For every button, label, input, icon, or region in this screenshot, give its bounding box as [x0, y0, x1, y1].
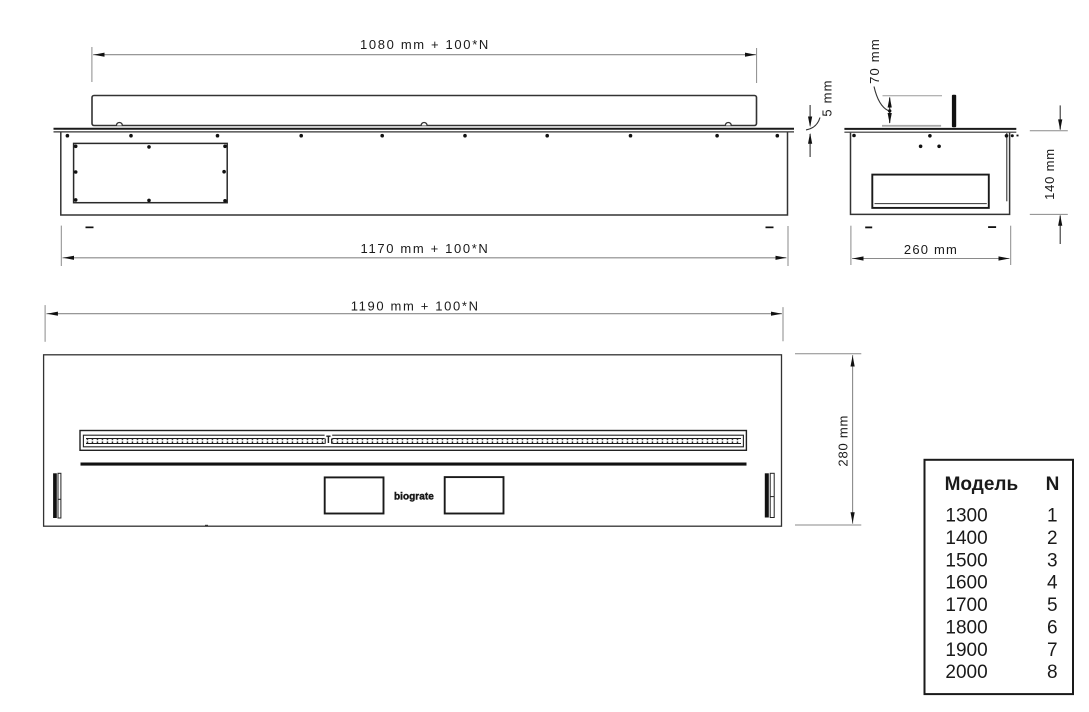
svg-text:6: 6: [1047, 617, 1058, 638]
svg-text:N: N: [1046, 474, 1060, 495]
svg-text:1170 mm + 100*N: 1170 mm + 100*N: [361, 241, 490, 256]
svg-text:1300: 1300: [945, 506, 987, 527]
svg-text:5 mm: 5 mm: [820, 79, 835, 116]
svg-text:260 mm: 260 mm: [904, 242, 958, 257]
svg-text:8: 8: [1047, 662, 1058, 683]
svg-text:3: 3: [1047, 550, 1058, 571]
svg-text:1600: 1600: [945, 573, 987, 594]
svg-text:1190 mm + 100*N: 1190 mm + 100*N: [351, 298, 480, 313]
svg-text:Модель: Модель: [945, 474, 1019, 495]
svg-text:4: 4: [1047, 573, 1058, 594]
svg-text:1500: 1500: [945, 550, 987, 571]
svg-text:1800: 1800: [945, 617, 987, 638]
svg-text:7: 7: [1047, 640, 1058, 661]
svg-text:2: 2: [1047, 528, 1058, 549]
svg-text:140 mm: 140 mm: [1042, 148, 1057, 200]
svg-text:2000: 2000: [945, 662, 987, 683]
svg-text:1700: 1700: [945, 595, 987, 616]
svg-text:70 mm: 70 mm: [867, 38, 882, 84]
svg-text:5: 5: [1047, 595, 1058, 616]
svg-text:1: 1: [1047, 506, 1058, 527]
svg-text:1900: 1900: [945, 640, 987, 661]
svg-text:280 mm: 280 mm: [836, 415, 851, 467]
svg-text:biograte: biograte: [394, 491, 434, 502]
svg-text:1400: 1400: [945, 528, 987, 549]
svg-text:1080 mm + 100*N: 1080 mm + 100*N: [360, 37, 490, 52]
